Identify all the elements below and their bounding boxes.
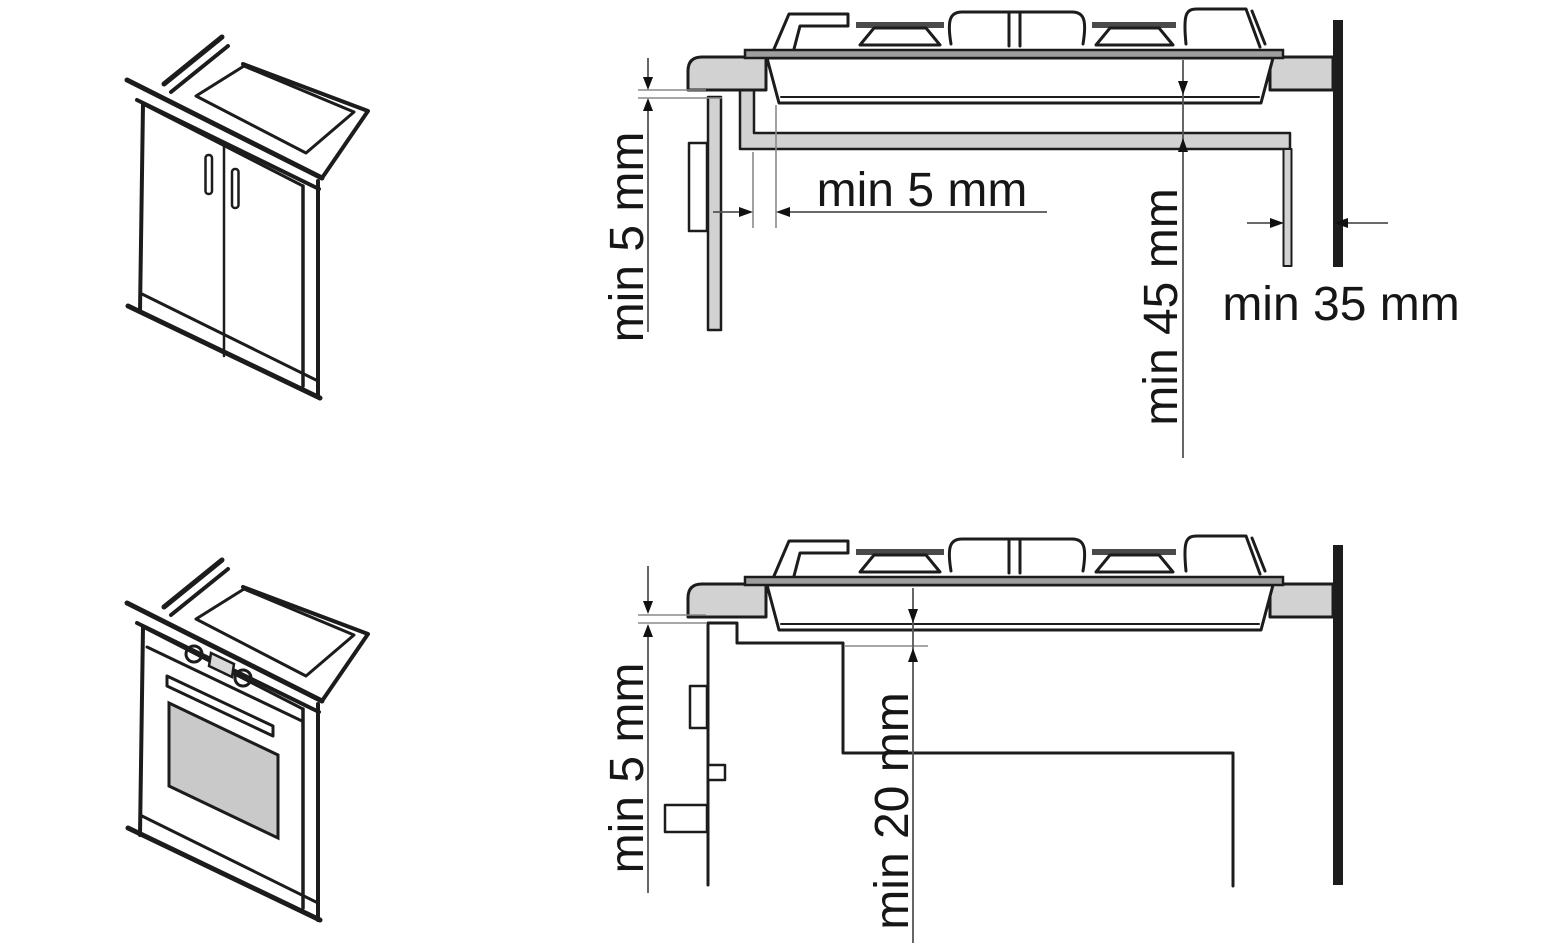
extension-lines bbox=[753, 105, 776, 228]
cabinet-left-edge bbox=[140, 627, 143, 835]
label-min5-vertical-top: min 5 mm bbox=[601, 132, 654, 343]
dim-min35-horizontal bbox=[1247, 218, 1388, 228]
oven-front-detail-upper bbox=[690, 686, 707, 728]
cabinet-back-panel bbox=[1284, 149, 1292, 266]
installation-diagram-page: min 5 mm min 5 mm min 45 mm min 35 mm mi… bbox=[0, 0, 1564, 943]
door-handle-left bbox=[206, 155, 213, 194]
label-min5-horizontal-top: min 5 mm bbox=[817, 164, 1028, 217]
burner-cap-left bbox=[860, 28, 940, 45]
worktop-backsplash-outer bbox=[164, 560, 222, 607]
arrowhead-down-icon bbox=[643, 601, 653, 614]
cabinet-left-edge bbox=[140, 104, 143, 312]
cabinet-bottom-edge bbox=[128, 828, 320, 920]
cabinet-door-front bbox=[689, 143, 707, 231]
installation-diagram-canvas: min 5 mm min 5 mm min 45 mm min 35 mm mi… bbox=[0, 0, 1564, 943]
pan-support-left bbox=[774, 14, 848, 49]
pan-support-middle bbox=[949, 12, 1084, 44]
arrowhead-right-icon bbox=[1270, 218, 1284, 228]
oven-front-tab bbox=[708, 765, 725, 780]
hob-cross-section-bottom bbox=[688, 536, 1333, 630]
hob-cross-section bbox=[688, 9, 1333, 103]
label-min35: min 35 mm bbox=[1222, 278, 1459, 331]
top-cross-section: min 5 mm min 5 mm min 45 mm min 35 mm bbox=[601, 9, 1460, 458]
burner-cap-right bbox=[1096, 28, 1173, 45]
label-min20: min 20 mm bbox=[866, 692, 919, 929]
arrowhead-down-icon bbox=[643, 77, 653, 90]
pan-support-right bbox=[1185, 9, 1265, 47]
arrowhead-up-icon bbox=[643, 98, 653, 111]
cabinet-side-panel bbox=[708, 97, 721, 330]
oven-outline bbox=[708, 623, 1233, 886]
cabinet-plinth-line bbox=[142, 816, 318, 903]
worktop-right bbox=[1270, 57, 1333, 90]
label-min45: min 45 mm bbox=[1135, 188, 1188, 425]
pan-support-middle-post bbox=[1009, 13, 1020, 46]
base-cabinet-isometric bbox=[127, 37, 368, 398]
oven-front-detail-lower bbox=[665, 805, 707, 832]
arrowhead-right-icon bbox=[739, 207, 753, 217]
worktop-left bbox=[688, 57, 766, 90]
worktop-backsplash-outer bbox=[164, 37, 222, 84]
hob-plate bbox=[745, 50, 1283, 58]
arrowhead-up-icon bbox=[643, 624, 653, 637]
arrowhead-left-icon bbox=[776, 207, 790, 217]
oven-cabinet-isometric bbox=[127, 560, 368, 920]
arrowhead-up-icon bbox=[908, 648, 918, 662]
label-min5-vertical-bottom: min 5 mm bbox=[601, 663, 654, 874]
door-handle-right bbox=[232, 169, 239, 208]
cabinet-plinth-line bbox=[142, 294, 318, 381]
bottom-cross-section: min 5 mm min 20 mm bbox=[601, 536, 1343, 943]
